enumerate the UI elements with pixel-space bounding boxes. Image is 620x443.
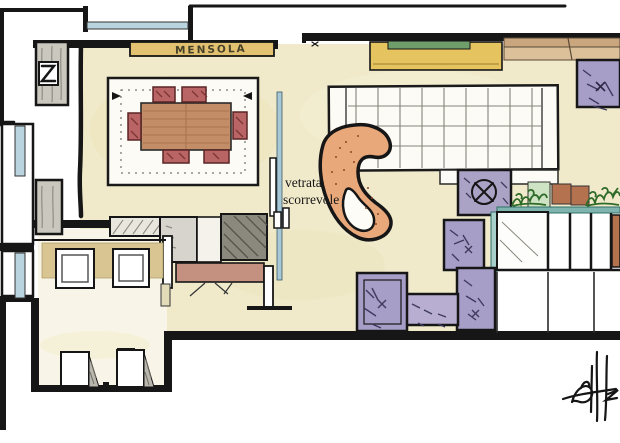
gray-column bbox=[36, 180, 62, 234]
left-window-glass bbox=[15, 253, 25, 298]
beige-post bbox=[161, 284, 170, 306]
threshold-line bbox=[247, 306, 292, 310]
mensola-shelf: MENSOLA bbox=[130, 42, 274, 57]
main-bottom-wall bbox=[166, 331, 620, 340]
glass-post bbox=[270, 158, 276, 216]
corridor-left-wall bbox=[31, 298, 39, 392]
floor-plan-canvas: MENSOLA bbox=[0, 0, 620, 443]
sliding-glass-label-line2: scorrevole bbox=[283, 192, 339, 207]
chair bbox=[182, 87, 206, 102]
door-leaf bbox=[117, 350, 144, 387]
green-insert bbox=[388, 41, 470, 49]
chair bbox=[163, 150, 189, 163]
armchair-top-right bbox=[577, 60, 620, 110]
sofa-backrest bbox=[176, 263, 264, 282]
counter-strip-dark bbox=[504, 38, 620, 47]
left-room-wall bbox=[80, 44, 81, 216]
stair-treads bbox=[548, 213, 611, 270]
left-window-glass bbox=[15, 126, 25, 176]
floor-plan-sketch: MENSOLA bbox=[0, 0, 620, 443]
sideboard-wall-line bbox=[34, 239, 166, 241]
sliding-glass-label-line1: vetrata bbox=[285, 175, 322, 190]
chair bbox=[233, 112, 247, 139]
counter-strip-light bbox=[504, 47, 620, 60]
sectional-top-seat bbox=[444, 220, 484, 270]
glass-post bbox=[283, 208, 289, 228]
dining-set bbox=[108, 78, 258, 185]
stair-side-strip bbox=[612, 215, 620, 267]
post bbox=[163, 236, 172, 288]
wall-columns bbox=[36, 42, 68, 234]
artist-signature-icon bbox=[563, 352, 618, 421]
sofa-cushion-mid bbox=[197, 217, 221, 262]
window-jamb bbox=[188, 6, 193, 44]
corridor-right-wall bbox=[164, 331, 172, 392]
outer-wall-bottom-left bbox=[0, 296, 6, 430]
chair bbox=[128, 113, 141, 140]
glass-post bbox=[274, 212, 281, 228]
post bbox=[264, 266, 273, 308]
sectional-seat-strip bbox=[404, 294, 458, 325]
doorway-jamb bbox=[302, 33, 306, 43]
terracotta-pot bbox=[552, 184, 571, 204]
glass-pane bbox=[277, 92, 282, 280]
door-tick bbox=[103, 382, 109, 386]
staircase bbox=[497, 212, 620, 333]
sectional-right-seat bbox=[457, 268, 495, 330]
floor-tile-joints bbox=[497, 272, 594, 333]
door-header bbox=[117, 348, 135, 351]
top-window-glass bbox=[87, 22, 188, 29]
terracotta-pot bbox=[571, 186, 589, 205]
chair bbox=[153, 87, 175, 102]
shelf-label: MENSOLA bbox=[175, 43, 247, 57]
door-leaf bbox=[61, 352, 89, 386]
